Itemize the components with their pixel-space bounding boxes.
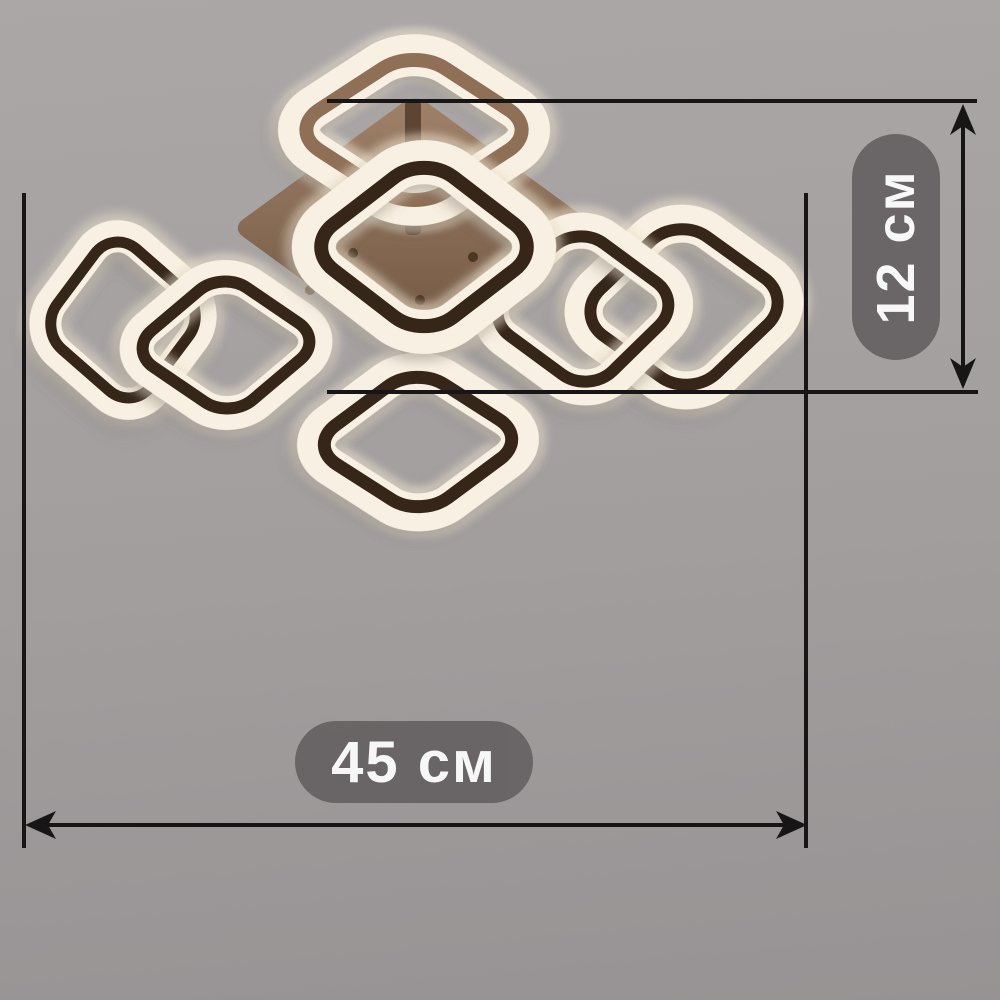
product-dimension-image: 45 см 12 см xyxy=(0,0,1000,1000)
chandelier-illustration xyxy=(0,0,1000,1000)
width-dimension-label: 45 см xyxy=(295,721,533,803)
height-dimension-label: 12 см xyxy=(852,134,940,360)
chandelier-fixture xyxy=(32,42,803,525)
led-ring-bottom xyxy=(298,359,538,525)
